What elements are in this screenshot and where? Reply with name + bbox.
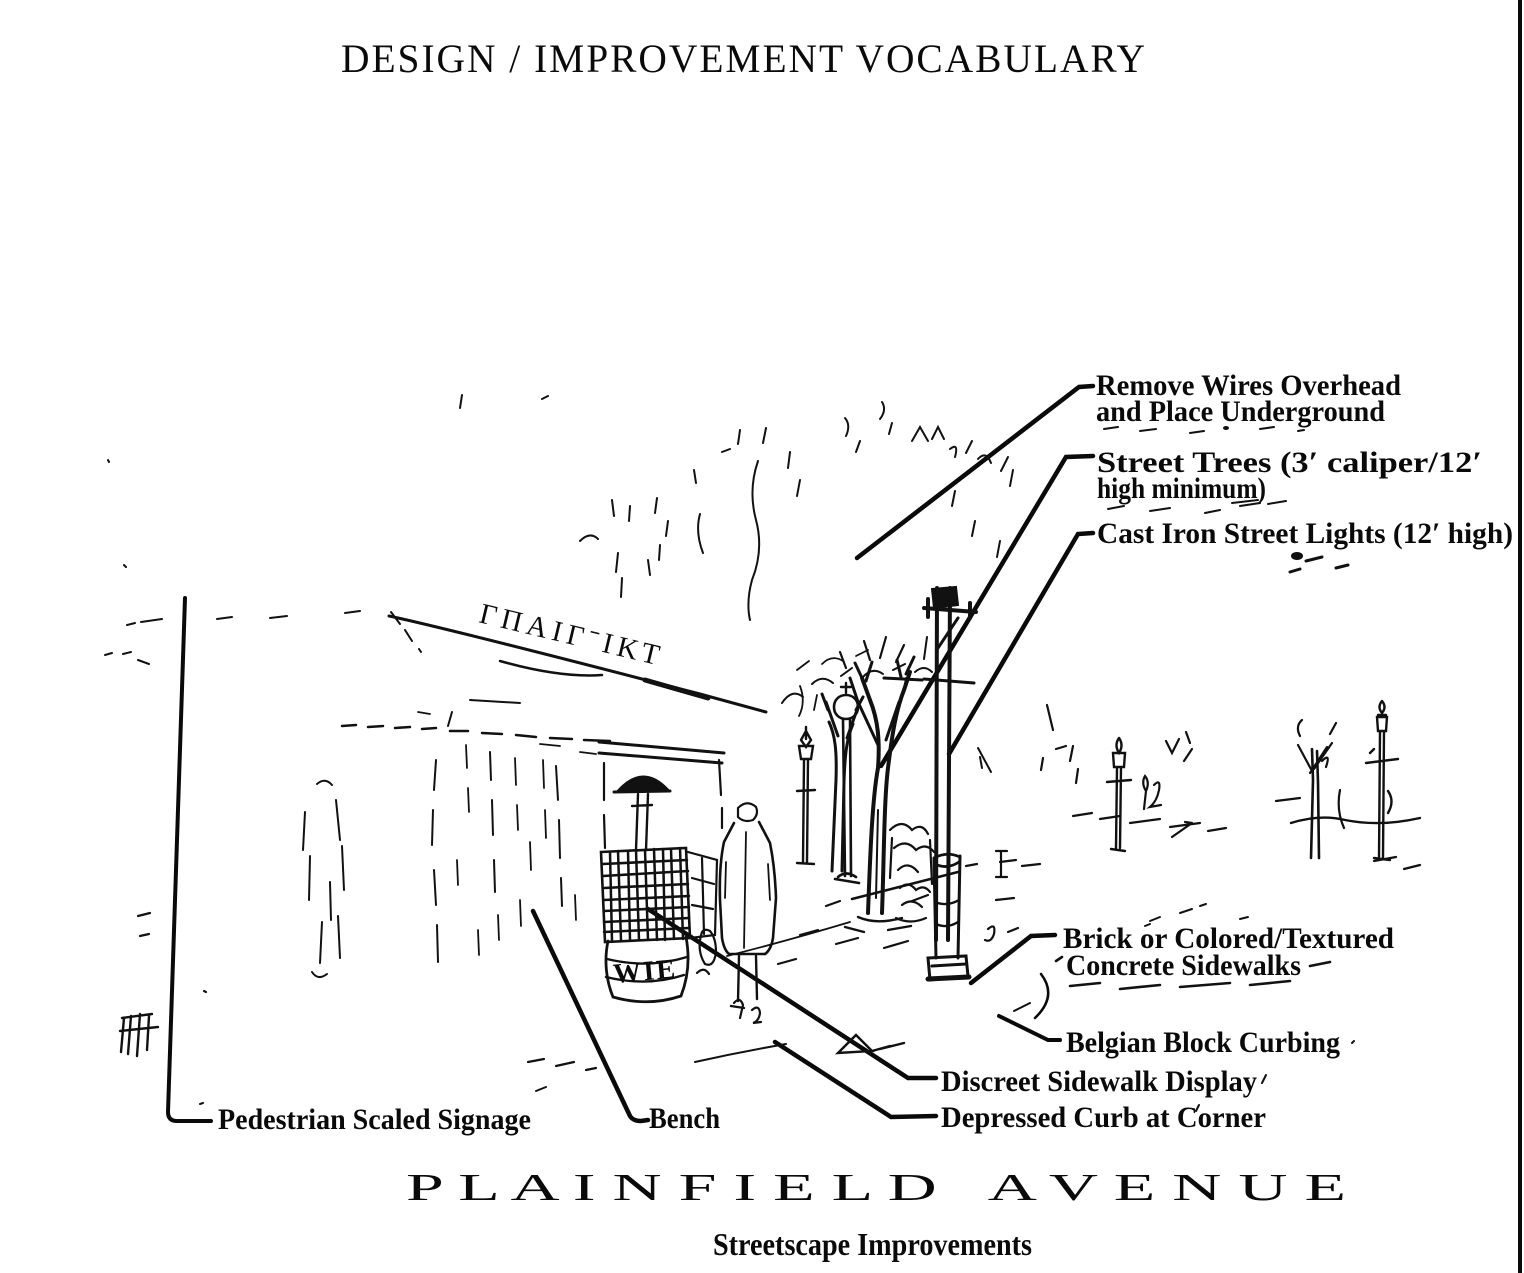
svg-text:Streetscape Improvements: Streetscape Improvements <box>713 1226 1032 1262</box>
svg-text:Pedestrian Scaled Signage: Pedestrian Scaled Signage <box>218 1103 531 1136</box>
svg-text:Concrete Sidewalks: Concrete Sidewalks <box>1066 949 1301 982</box>
svg-text:Discreet Sidewalk Display: Discreet Sidewalk Display <box>941 1065 1257 1098</box>
svg-text:P L A I N F I E L D A V E N: P L A I N F I E L D A V E N U E <box>406 1167 1346 1209</box>
svg-text:Depressed Curb at Corner: Depressed Curb at Corner <box>941 1101 1266 1134</box>
svg-text:Cast Iron Street Lights (12′ h: Cast Iron Street Lights (12′ high) <box>1097 517 1513 550</box>
svg-text:DESIGN / IMPROVEMENT VOCABULA: DESIGN / IMPROVEMENT VOCABULARY <box>341 36 1147 81</box>
svg-text:Belgian Block Curbing: Belgian Block Curbing <box>1066 1026 1340 1059</box>
svg-text:Bench: Bench <box>649 1102 720 1135</box>
svg-text:WIE: WIE <box>612 954 676 990</box>
svg-text:high minimum): high minimum) <box>1097 472 1266 505</box>
svg-text:and Place Underground: and Place Underground <box>1096 395 1385 428</box>
